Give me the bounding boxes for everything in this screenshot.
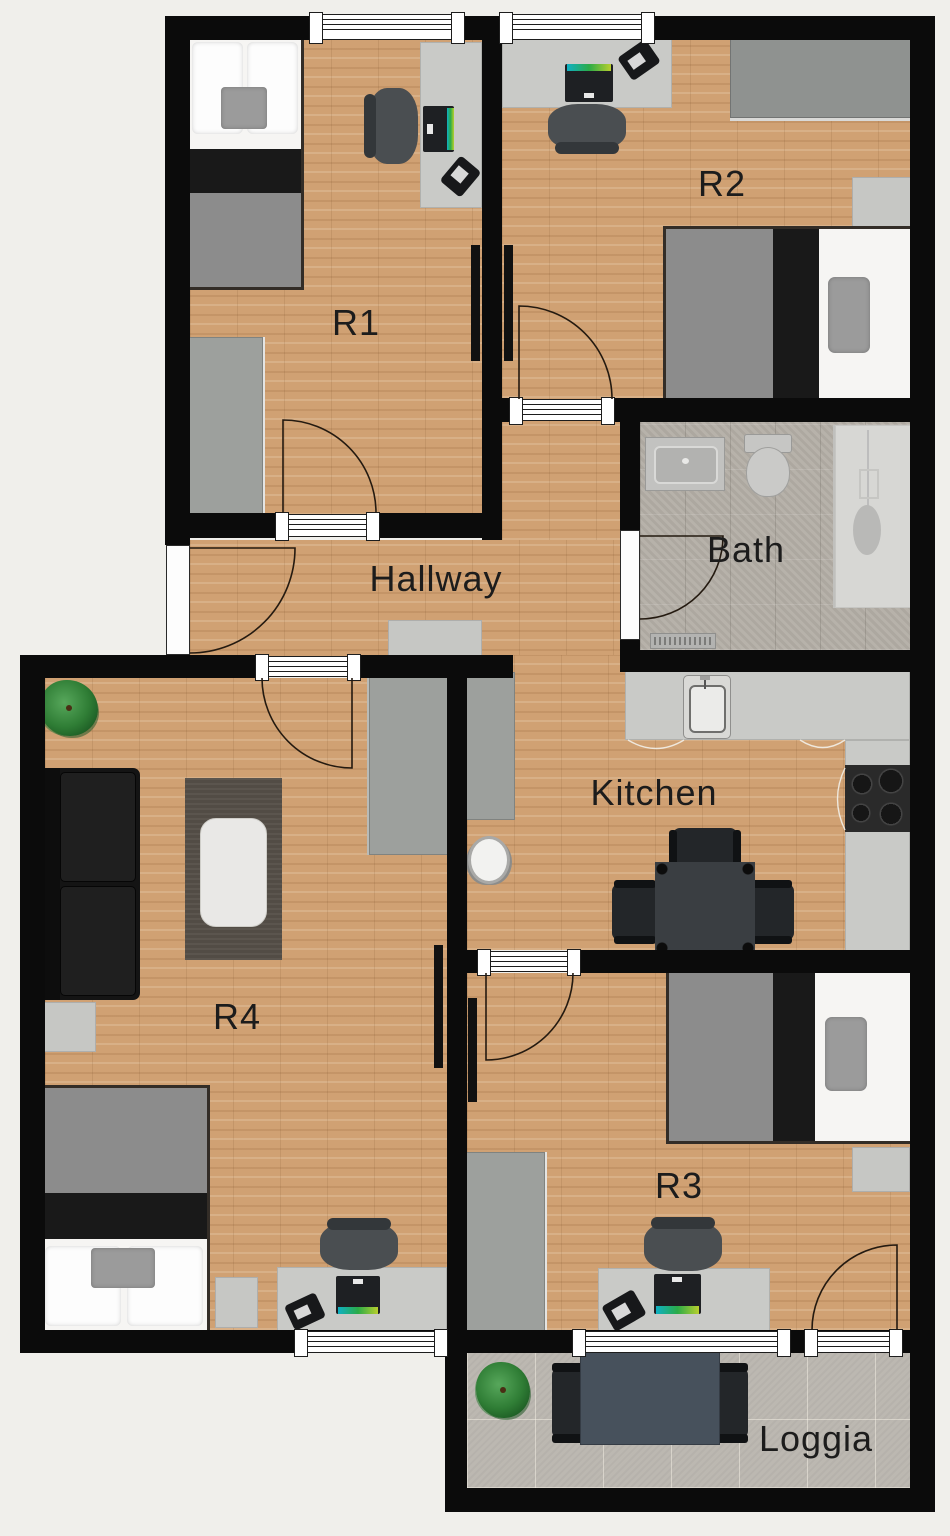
r4-door [258,656,358,677]
r3-pillow [825,1017,867,1091]
r3-blanket-band [773,969,815,1141]
r4-monitor-screen [338,1307,378,1314]
loggia-plant-icon [476,1362,530,1418]
wall [445,1488,935,1512]
wall [620,650,935,672]
kitchen-counter-top [625,668,910,740]
kitchen-table [655,862,755,955]
kitchen-sink-basin [689,685,726,733]
r4-office-chair [320,1222,398,1270]
r2-chair-back [555,142,619,154]
r3-wardrobe [462,1152,547,1332]
wall [377,513,502,538]
r2-bed [663,226,913,404]
kitchen-cooktop [845,765,910,832]
r1-wardrobe [185,337,265,517]
r4-window [297,1331,445,1353]
r4-cushion [91,1248,155,1288]
r2-window [502,14,652,40]
r3-tv-icon [468,998,477,1102]
r1-door [278,514,377,537]
r2-blanket-band [773,229,819,401]
r1-blanket [189,193,301,287]
floor-plan: R1 R2 Hallway Bath Kitchen R4 R3 Loggia [0,0,950,1536]
bath-sink-drain [682,458,689,464]
shower-bracket [859,469,879,499]
r4-blanket [41,1088,207,1193]
r4-nightstand [215,1277,258,1328]
r3-monitor-icon [654,1274,701,1314]
r4-sofa-cushion [60,772,136,882]
room-label-loggia: Loggia [759,1418,873,1460]
r3-chair-back [651,1217,715,1229]
r1-bed [186,34,304,290]
bath-radiator [650,633,716,649]
r3-blanket [669,969,773,1141]
room-label-r2: R2 [698,163,746,205]
r4-wardrobe [367,675,449,855]
wall [447,655,467,1353]
wall [620,422,640,530]
r1-window [312,14,462,40]
r1-blanket-band [189,149,301,193]
r3-window [575,1331,788,1353]
wall [447,950,480,973]
r2-wardrobe [730,36,912,121]
r4-coffee-table [200,818,267,927]
loggia-door [807,1331,900,1353]
r4-side-table [36,1002,96,1052]
r3-bed [666,966,914,1144]
hallway-sideboard [388,620,482,658]
wall [612,398,935,422]
bath-sink [645,437,725,491]
r4-monitor-icon [336,1276,380,1314]
r2-door [512,399,612,421]
wall [445,1330,467,1512]
shower-head-icon [853,505,881,555]
loggia-table [580,1350,720,1445]
r1-cushion [221,87,267,129]
room-label-hallway: Hallway [369,558,502,600]
wall [20,655,45,1353]
r2-office-chair [548,104,626,150]
r4-chair-back [327,1218,391,1230]
room-label-r1: R1 [332,302,380,344]
r1-tv-icon [471,245,480,361]
wall [578,950,935,973]
r3-nightstand [852,1147,910,1192]
room-label-kitchen: Kitchen [590,772,717,814]
wall [165,16,190,545]
kitchen-mirror-icon [468,836,510,884]
kitchen-sink [683,675,731,739]
kitchen-cabinet-left [465,672,515,820]
r3-monitor-screen [656,1306,699,1314]
r2-monitor-icon [565,64,613,102]
wall [165,513,278,538]
r1-chair-back [364,94,376,158]
room-label-r4: R4 [213,996,261,1038]
entrance-door [166,545,190,655]
room-label-r3: R3 [655,1165,703,1207]
bath-door [620,530,640,640]
r3-door [480,951,578,972]
r4-sofa [38,768,140,1000]
r3-office-chair [644,1221,722,1271]
wall [20,655,258,678]
toilet-bowl [746,447,790,497]
r2-nightstand [852,177,912,228]
r4-sofa-cushion [60,886,136,996]
r2-blanket [666,229,773,401]
room-label-bath: Bath [707,529,785,571]
r4-plant-icon [40,680,98,736]
kitchen-chair-left [612,884,658,940]
r2-monitor-screen [567,64,611,71]
r2-tv-icon [504,245,513,361]
bath-sink-basin [654,446,718,484]
wall [910,16,935,1512]
bath-shower [833,425,912,608]
r4-tv-icon [434,945,443,1068]
r2-pillow [828,277,870,353]
r4-bed [38,1085,210,1335]
r4-blanket-band [41,1193,207,1239]
r1-monitor-screen [447,108,454,150]
r1-monitor-icon [423,106,454,152]
r1-office-chair [368,88,418,164]
wall [482,16,502,400]
bath-toilet [742,434,792,496]
wall [358,655,513,678]
